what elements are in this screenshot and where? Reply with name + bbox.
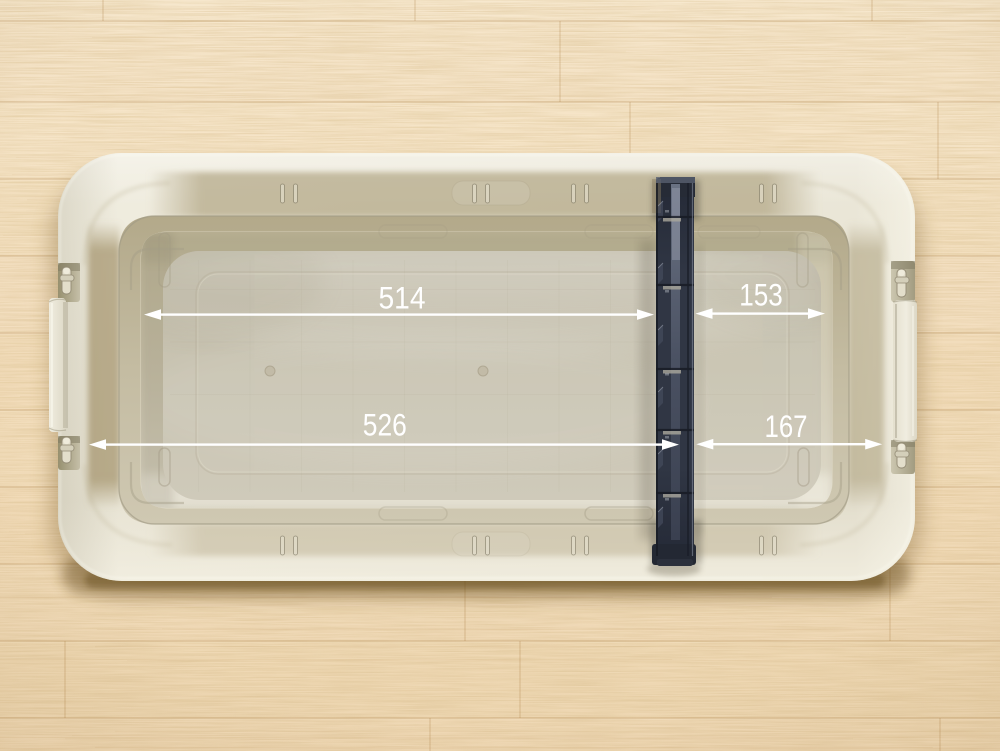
svg-text:514: 514: [379, 279, 426, 315]
svg-text:526: 526: [363, 406, 407, 442]
svg-text:153: 153: [739, 277, 783, 313]
svg-text:167: 167: [765, 408, 808, 444]
